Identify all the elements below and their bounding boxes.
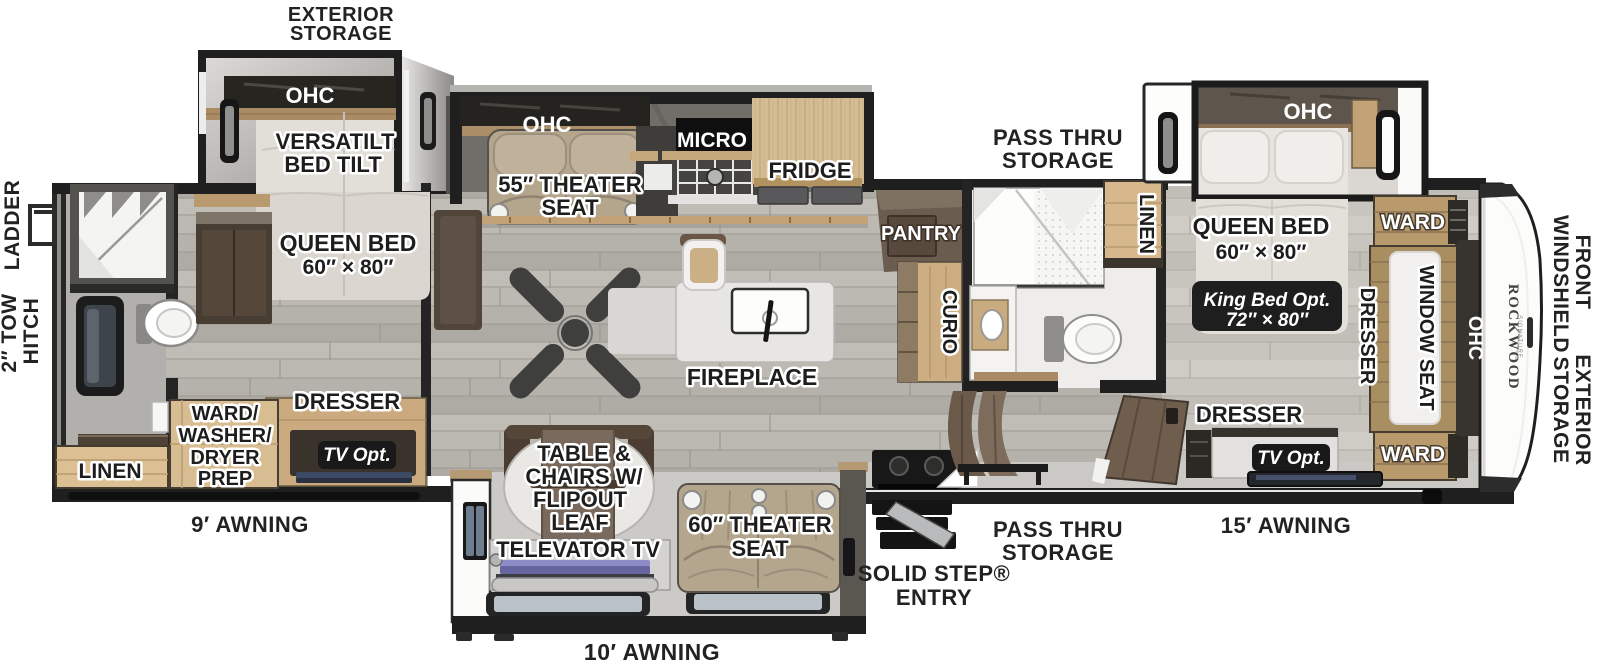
svg-text:9′ AWNING: 9′ AWNING xyxy=(191,512,309,537)
svg-text:SOLID STEP®: SOLID STEP® xyxy=(858,561,1011,586)
svg-text:HITCH: HITCH xyxy=(20,298,43,365)
svg-text:MICRO: MICRO xyxy=(677,129,747,152)
svg-text:FRONT: FRONT xyxy=(1571,235,1594,310)
svg-text:PANTRY: PANTRY xyxy=(881,223,962,245)
svg-text:WARD: WARD xyxy=(1381,211,1445,234)
svg-text:WASHER/: WASHER/ xyxy=(178,425,272,447)
svg-text:WINDSHIELD: WINDSHIELD xyxy=(1549,215,1572,353)
svg-text:STORAGE: STORAGE xyxy=(1002,148,1114,173)
svg-text:TV Opt.: TV Opt. xyxy=(1257,448,1325,469)
svg-text:LINEN: LINEN xyxy=(1135,194,1157,254)
svg-text:FLIPOUT: FLIPOUT xyxy=(533,487,628,512)
svg-text:PREP: PREP xyxy=(198,468,252,490)
svg-text:SEAT: SEAT xyxy=(731,536,789,561)
svg-text:ENTRY: ENTRY xyxy=(896,585,972,610)
svg-text:EXTERIOR: EXTERIOR xyxy=(1571,354,1594,465)
svg-text:OHC: OHC xyxy=(1464,316,1486,360)
svg-text:STORAGE: STORAGE xyxy=(1002,540,1114,565)
svg-text:60″ × 80″: 60″ × 80″ xyxy=(303,256,394,279)
svg-text:60″ × 80″: 60″ × 80″ xyxy=(1216,241,1307,264)
svg-text:STORAGE: STORAGE xyxy=(290,23,392,45)
svg-text:WINDOW SEAT: WINDOW SEAT xyxy=(1415,265,1437,410)
svg-text:King Bed Opt.: King Bed Opt. xyxy=(1204,290,1331,311)
svg-text:WARD: WARD xyxy=(1381,443,1445,466)
svg-text:TV Opt.: TV Opt. xyxy=(323,445,391,466)
svg-text:LEAF: LEAF xyxy=(551,510,608,535)
svg-text:WARD/: WARD/ xyxy=(192,403,259,425)
svg-text:2″ TOW: 2″ TOW xyxy=(0,293,21,372)
svg-text:DRESSER: DRESSER xyxy=(1196,402,1302,427)
svg-text:FIREPLACE: FIREPLACE xyxy=(687,364,817,390)
svg-text:VERSATILT: VERSATILT xyxy=(276,129,396,154)
svg-text:CURIO: CURIO xyxy=(938,290,960,354)
svg-text:LINEN: LINEN xyxy=(79,460,142,483)
svg-text:DRESSER: DRESSER xyxy=(1356,288,1378,385)
svg-text:PASS THRU: PASS THRU xyxy=(993,517,1123,542)
svg-text:CHAIRS W/: CHAIRS W/ xyxy=(525,464,642,489)
svg-text:QUEEN BED: QUEEN BED xyxy=(280,230,417,256)
svg-text:OHC: OHC xyxy=(523,112,572,137)
svg-text:OHC: OHC xyxy=(286,83,335,108)
svg-text:STORAGE: STORAGE xyxy=(1549,357,1572,464)
svg-text:TELEVATOR TV: TELEVATOR TV xyxy=(496,537,660,562)
svg-text:10′ AWNING: 10′ AWNING xyxy=(584,639,720,664)
svg-text:BED TILT: BED TILT xyxy=(284,152,382,177)
svg-text:72″ × 80″: 72″ × 80″ xyxy=(1226,310,1309,331)
svg-text:55″ THEATER: 55″ THEATER xyxy=(498,172,641,197)
svg-text:PASS THRU: PASS THRU xyxy=(993,125,1123,150)
svg-text:SIGNATURE: SIGNATURE xyxy=(1516,315,1522,359)
svg-text:DRYER: DRYER xyxy=(190,447,260,469)
svg-text:SEAT: SEAT xyxy=(541,195,599,220)
svg-text:TABLE &: TABLE & xyxy=(537,441,631,466)
svg-text:OHC: OHC xyxy=(1284,99,1333,124)
svg-text:QUEEN BED: QUEEN BED xyxy=(1193,213,1330,239)
svg-text:15′ AWNING: 15′ AWNING xyxy=(1221,513,1351,538)
svg-text:DRESSER: DRESSER xyxy=(294,389,400,414)
svg-text:60″ THEATER: 60″ THEATER xyxy=(688,512,831,537)
svg-text:LADDER: LADDER xyxy=(1,180,24,271)
svg-text:FRIDGE: FRIDGE xyxy=(768,158,851,183)
